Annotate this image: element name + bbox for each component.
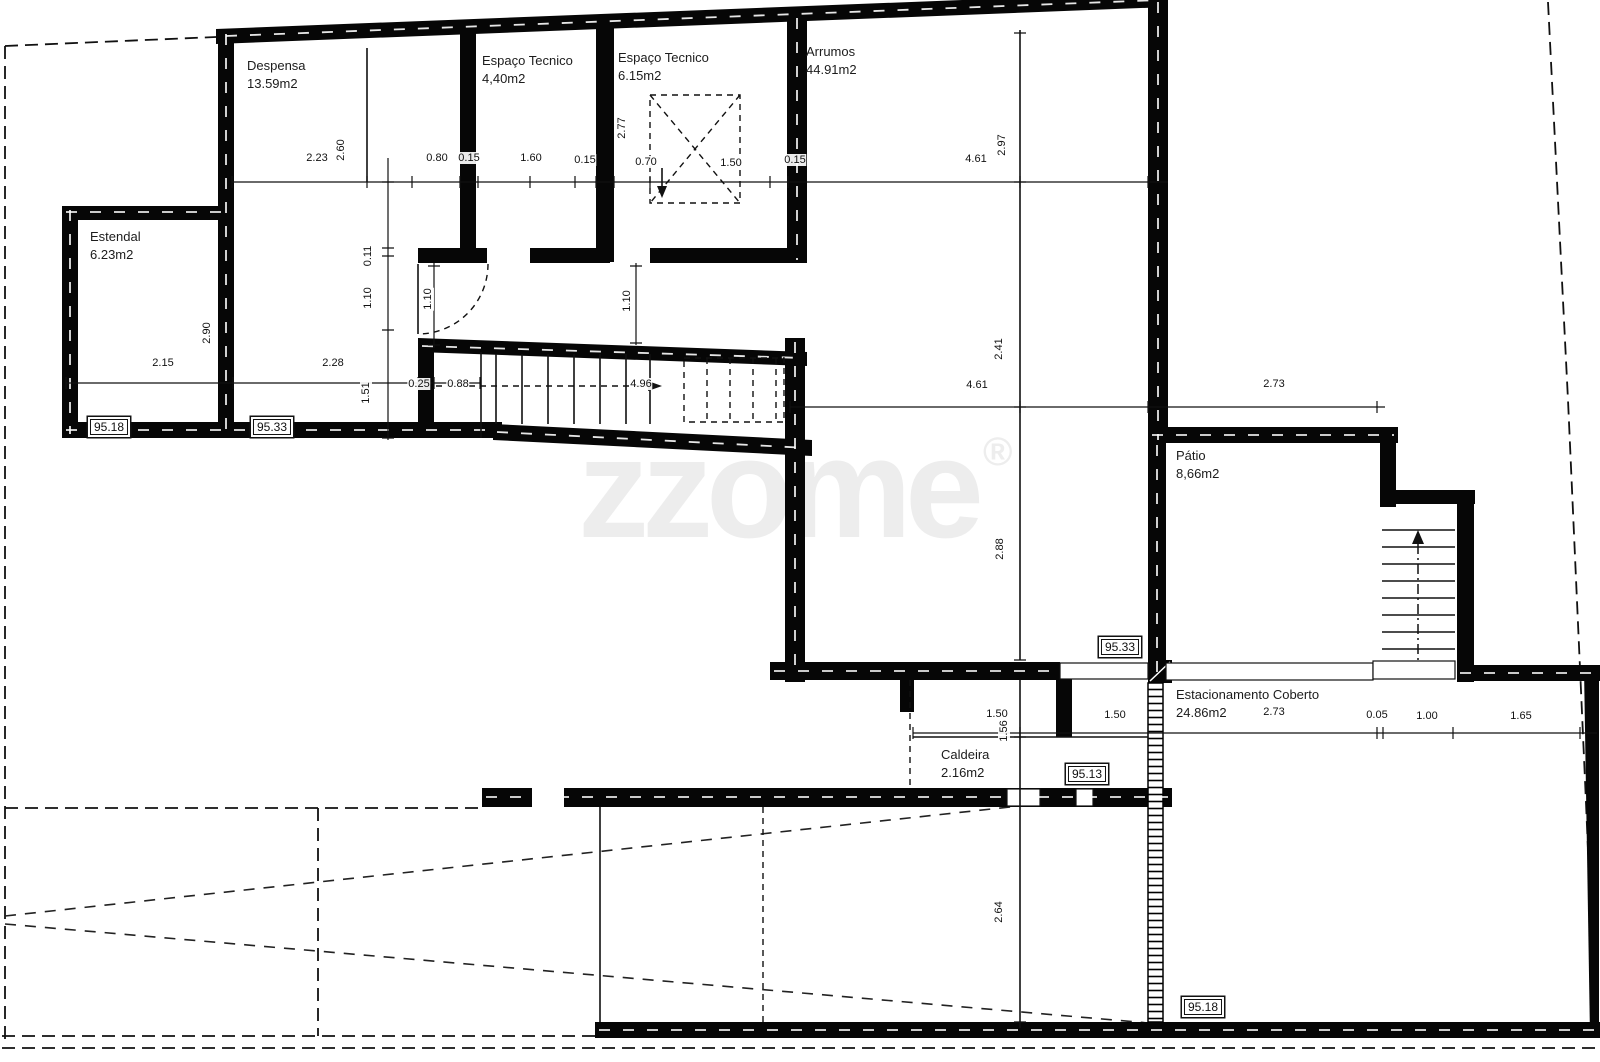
- dim-label: 0.15: [573, 154, 596, 166]
- dim-label: 1.65: [1509, 710, 1532, 722]
- wall-garage-right: [1584, 668, 1599, 1036]
- room-label-espaco-tecnico-2: Espaço Tecnico 6.15m2: [618, 49, 709, 84]
- room-area: 6.15m2: [618, 67, 709, 85]
- dim-label-vertical: 1.56: [998, 719, 1010, 742]
- wall-garage-left-hatched: [1148, 683, 1163, 1022]
- wall-et-et: [596, 23, 614, 262]
- opening-patio-garage: [1166, 663, 1373, 680]
- dim-label: 2.73: [1262, 378, 1285, 390]
- wall-stair2-right: [1457, 490, 1474, 682]
- dim-label: 0.70: [634, 156, 657, 168]
- dim-label-vertical: 2.77: [616, 116, 628, 139]
- stairs-main-dashed-treads: [707, 358, 776, 422]
- opening-caldeira-top: [1060, 663, 1148, 679]
- wall-corridor-a: [418, 248, 487, 263]
- dim-label: 1.00: [1415, 710, 1438, 722]
- room-area: 24.86m2: [1176, 704, 1319, 722]
- dim-label: 4.96: [629, 378, 652, 390]
- floor-plan-canvas: zzome®: [0, 0, 1600, 1062]
- dim-label: 4.61: [964, 153, 987, 165]
- wall-corridor-c: [650, 248, 787, 263]
- wall-stair-top: [418, 338, 807, 366]
- room-area: 2.16m2: [941, 764, 989, 782]
- dim-label-vertical: 2.64: [993, 900, 1005, 923]
- room-name: Arrumos: [806, 43, 857, 61]
- room-name: Despensa: [247, 57, 306, 75]
- level-marker: 95.13: [1068, 766, 1106, 782]
- dim-label-vertical: 1.10: [422, 287, 434, 310]
- room-area: 6.23m2: [90, 246, 141, 264]
- ramp-diagonal-lower: [5, 924, 1160, 1024]
- room-area: 44.91m2: [806, 61, 857, 79]
- dim-label-vertical: 2.97: [996, 133, 1008, 156]
- dim-label: 0.05: [1365, 709, 1388, 721]
- level-marker: 95.18: [90, 419, 128, 435]
- room-area: 13.59m2: [247, 75, 306, 93]
- stairs-main-dashed-zone: [684, 358, 784, 422]
- room-name: Espaço Tecnico: [618, 49, 709, 67]
- stairs-patio-arrow: [1412, 530, 1424, 544]
- room-area: 4,40m2: [482, 70, 573, 88]
- dim-label: 0.80: [425, 152, 448, 164]
- dim-label: 1.50: [719, 157, 742, 169]
- room-name: Estacionamento Coberto: [1176, 686, 1319, 704]
- dim-label: 2.73: [1262, 706, 1285, 718]
- room-name: Estendal: [90, 228, 141, 246]
- dim-label: 1.50: [985, 708, 1008, 720]
- dim-label-vertical: 2.88: [994, 537, 1006, 560]
- dim-label: 0.15: [783, 154, 806, 166]
- dim-label: 0.25: [407, 378, 430, 390]
- dim-label-vertical: 1.10: [362, 286, 374, 309]
- room-label-espaco-tecnico-1: Espaço Tecnico 4,40m2: [482, 52, 573, 87]
- wall-despensa-et: [460, 28, 476, 262]
- dim-label: 0.88: [446, 378, 469, 390]
- room-name: Espaço Tecnico: [482, 52, 573, 70]
- wall-top: [216, 0, 1168, 44]
- wall-caldeira-left: [900, 662, 914, 712]
- room-label-caldeira: Caldeira 2.16m2: [941, 746, 989, 781]
- dim-label-vertical: 2.41: [993, 337, 1005, 360]
- room-area: 8,66m2: [1176, 465, 1219, 483]
- dim-label-vertical: 1.10: [621, 289, 633, 312]
- room-label-arrumos: Arrumos 44.91m2: [806, 43, 857, 78]
- wall-caldeira-mid: [1056, 679, 1072, 737]
- level-marker: 95.33: [253, 419, 291, 435]
- wall-stair-left: [418, 348, 434, 438]
- room-label-patio: Pátio 8,66m2: [1176, 447, 1219, 482]
- opening-understair: [1373, 661, 1455, 679]
- room-label-estacionamento: Estacionamento Coberto 24.86m2: [1176, 686, 1319, 721]
- dim-label-vertical: 0.11: [362, 245, 374, 268]
- dim-label-vertical: 2.60: [335, 138, 347, 161]
- room-name: Pátio: [1176, 447, 1219, 465]
- dim-ticks: [66, 33, 1580, 1022]
- wall-corridor-b: [530, 248, 610, 263]
- stairs-main-treads: [496, 354, 650, 424]
- level-marker: 95.33: [1101, 639, 1139, 655]
- dim-label: 2.23: [305, 152, 328, 164]
- dim-label: 1.60: [519, 152, 542, 164]
- dim-label: 0.15: [457, 152, 480, 164]
- level-marker: 95.18: [1184, 999, 1222, 1015]
- dim-label: 2.15: [151, 357, 174, 369]
- boundary-top: [5, 37, 216, 46]
- wall-estendal-top: [62, 206, 232, 220]
- room-name: Caldeira: [941, 746, 989, 764]
- dim-label-vertical: 1.51: [360, 381, 372, 404]
- dim-label: 2.28: [321, 357, 344, 369]
- room-label-estendal: Estendal 6.23m2: [90, 228, 141, 263]
- dim-label-vertical: 2.90: [201, 321, 213, 344]
- wall-stair-bottom: [493, 424, 812, 456]
- dim-label: 4.61: [965, 379, 988, 391]
- ramp-diagonal-upper: [5, 792, 1148, 916]
- dim-label: 1.50: [1103, 709, 1126, 721]
- wall-garage-top: [1457, 665, 1600, 681]
- room-label-despensa: Despensa 13.59m2: [247, 57, 306, 92]
